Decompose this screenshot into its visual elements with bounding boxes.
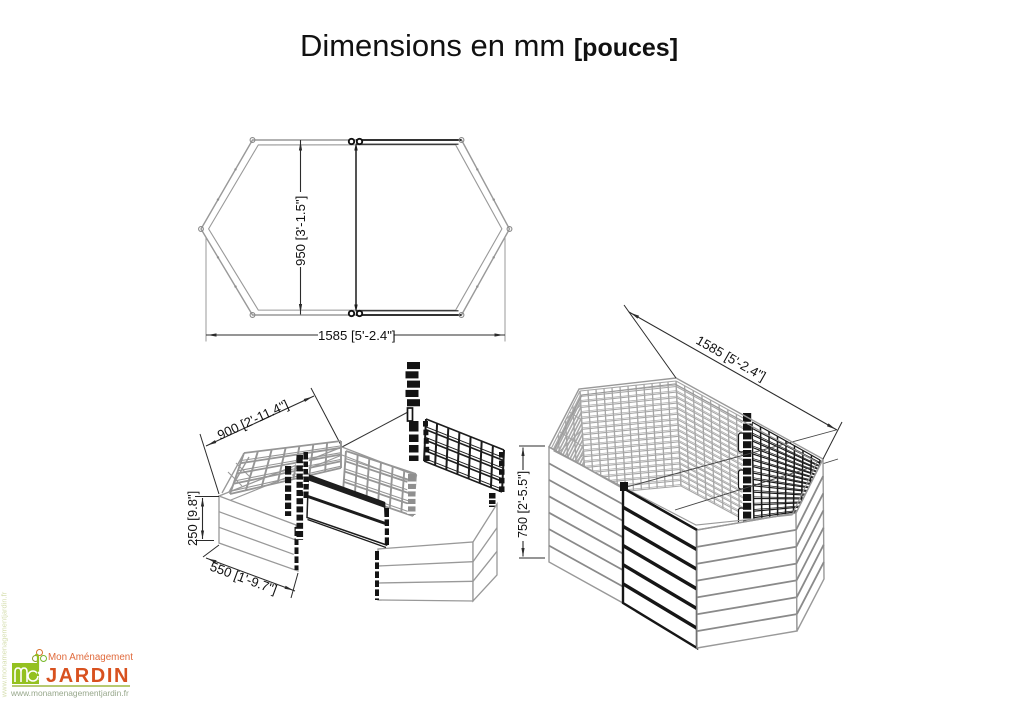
svg-text:900 [2'-11.4"]: 900 [2'-11.4"]	[215, 397, 291, 443]
svg-text:1585 [5'-2.4"]: 1585 [5'-2.4"]	[694, 333, 769, 384]
svg-text:950 [3'-1.5"]: 950 [3'-1.5"]	[293, 196, 308, 266]
svg-text:550 [1'-9.7"]: 550 [1'-9.7"]	[208, 559, 279, 597]
svg-text:750 [2'-5.5"]: 750 [2'-5.5"]	[516, 471, 530, 538]
svg-text:1585 [5'-2.4"]: 1585 [5'-2.4"]	[318, 328, 396, 343]
svg-text:250 [9.8"]: 250 [9.8"]	[185, 491, 200, 546]
